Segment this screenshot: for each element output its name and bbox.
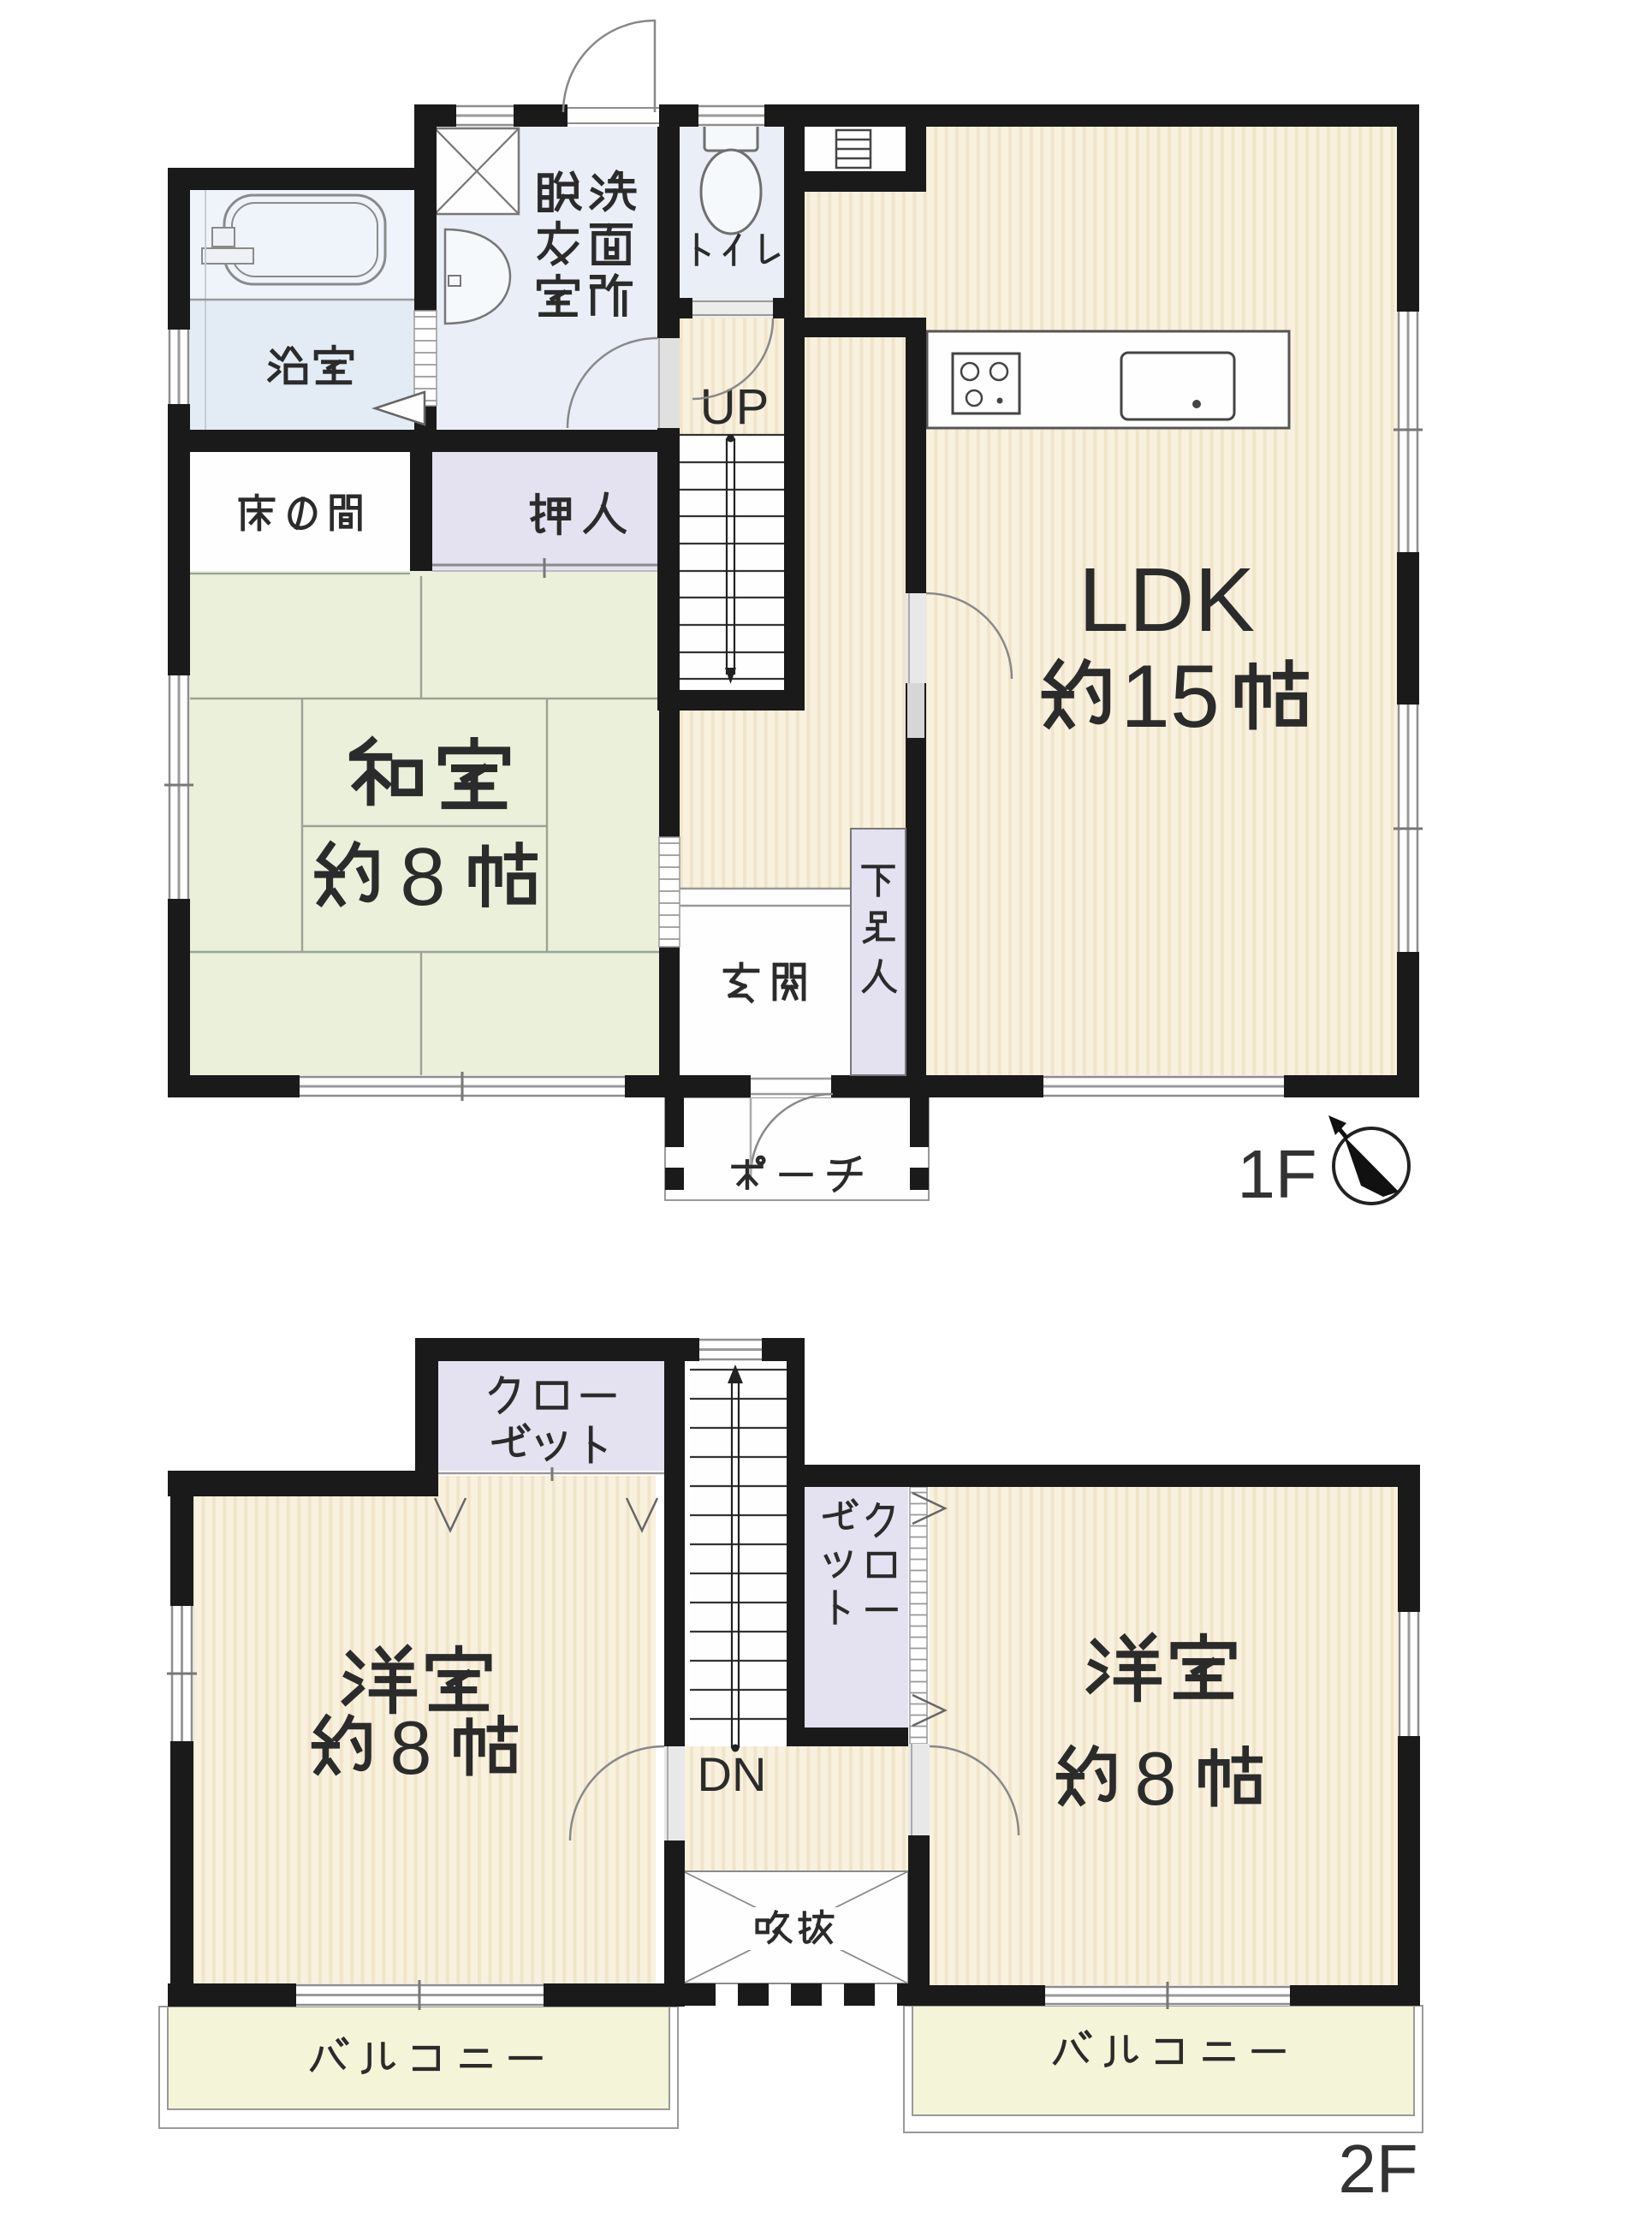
svg-text:8: 8 xyxy=(390,1705,432,1790)
svg-text:2F: 2F xyxy=(1338,2131,1417,2207)
svg-text:DN: DN xyxy=(698,1747,767,1801)
svg-text:8: 8 xyxy=(1135,1736,1177,1821)
svg-text:1F: 1F xyxy=(1237,1136,1316,1212)
svg-text:8: 8 xyxy=(400,831,445,923)
svg-text:LDK: LDK xyxy=(1079,550,1255,651)
svg-text:15: 15 xyxy=(1120,647,1220,746)
